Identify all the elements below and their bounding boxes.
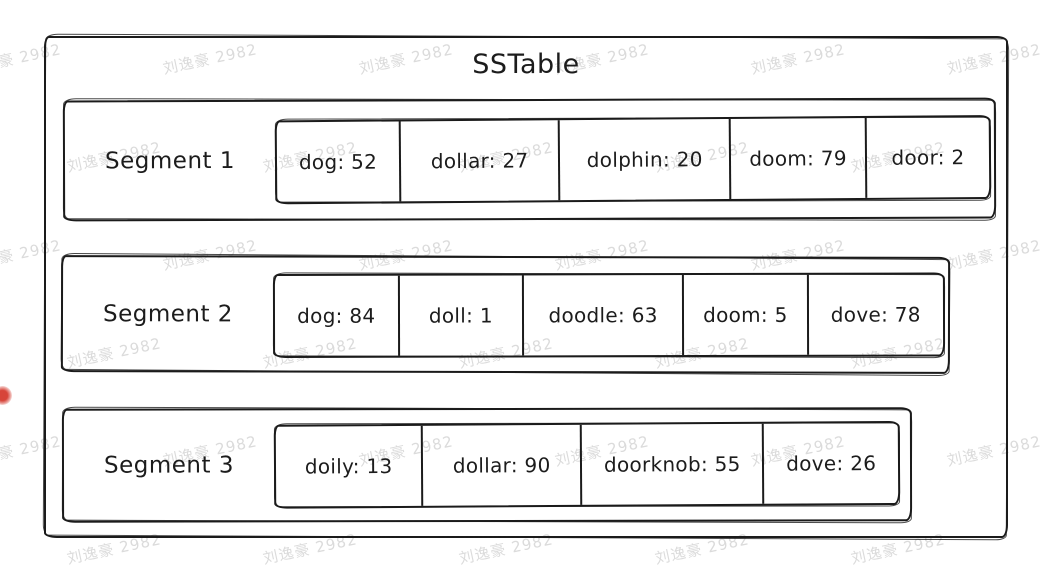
- kv-cell: dog: 84: [275, 275, 398, 355]
- segment-2-kv-container: dog: 84doll: 1doodle: 63doom: 5dove: 78: [273, 272, 945, 358]
- kv-cell: dollar: 90: [421, 425, 580, 506]
- kv-cell: dove: 78: [807, 274, 944, 354]
- kv-cell: dog: 52: [277, 121, 400, 202]
- page: { "title": "SSTable", "watermark": { "te…: [0, 0, 1045, 574]
- kv-cell: door: 2: [865, 117, 990, 198]
- kv-cell: dove: 26: [762, 423, 898, 504]
- laser-pointer-dot: [0, 386, 12, 405]
- segment-row-3: Segment 3 doily: 13dollar: 90doorknob: 5…: [62, 407, 912, 522]
- sstable-title: SSTable: [46, 49, 1006, 80]
- kv-cell: doom: 5: [682, 274, 807, 354]
- segment-row-1: Segment 1 dog: 52dollar: 27dolphin: 20do…: [63, 98, 996, 222]
- segment-1-label: Segment 1: [65, 147, 275, 174]
- sstable-box: SSTable Segment 1 dog: 52dollar: 27dolph…: [44, 36, 1008, 538]
- kv-cell: doodle: 63: [522, 275, 682, 355]
- segment-1-kv-container: dog: 52dollar: 27dolphin: 20doom: 79door…: [275, 114, 992, 203]
- kv-cell: dolphin: 20: [558, 118, 730, 199]
- segment-row-2: Segment 2 dog: 84doll: 1doodle: 63doom: …: [61, 255, 950, 374]
- kv-cell: doorknob: 55: [580, 424, 763, 505]
- segment-3-kv-container: doily: 13dollar: 90doorknob: 55dove: 26: [274, 421, 901, 509]
- kv-cell: doom: 79: [729, 117, 865, 198]
- segment-2-label: Segment 2: [63, 301, 273, 327]
- kv-cell: doily: 13: [276, 426, 422, 507]
- segment-3-label: Segment 3: [64, 452, 274, 478]
- kv-cell: doll: 1: [397, 275, 522, 355]
- kv-cell: dollar: 27: [399, 120, 559, 201]
